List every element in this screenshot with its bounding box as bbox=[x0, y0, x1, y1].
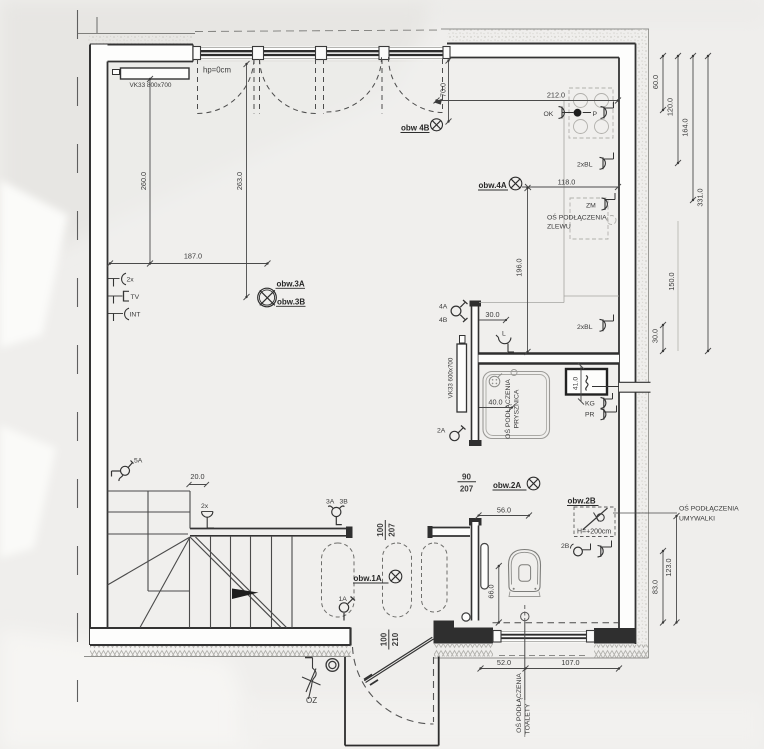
svg-text:obw.1A: obw.1A bbox=[354, 574, 382, 583]
svg-text:52.0: 52.0 bbox=[497, 658, 511, 667]
svg-text:83.0: 83.0 bbox=[651, 580, 660, 594]
svg-text:100: 100 bbox=[380, 632, 389, 646]
svg-text:263.0: 263.0 bbox=[235, 172, 244, 190]
svg-text:hp=0cm: hp=0cm bbox=[203, 66, 231, 75]
svg-text:207: 207 bbox=[388, 523, 397, 537]
svg-text:obw.2A: obw.2A bbox=[493, 481, 521, 490]
svg-text:P: P bbox=[593, 111, 598, 118]
svg-text:107.0: 107.0 bbox=[561, 658, 579, 667]
svg-text:obw 4B: obw 4B bbox=[401, 124, 430, 133]
svg-text:30.0: 30.0 bbox=[651, 329, 660, 343]
svg-text:OŚ PODŁĄCZENIA: OŚ PODŁĄCZENIA bbox=[679, 504, 739, 513]
svg-text:331.0: 331.0 bbox=[696, 188, 705, 206]
svg-text:INT: INT bbox=[130, 312, 141, 319]
svg-text:90: 90 bbox=[462, 473, 471, 482]
svg-text:150.0: 150.0 bbox=[667, 272, 676, 290]
svg-text:VK33 600x700: VK33 600x700 bbox=[448, 357, 455, 398]
svg-text:2B: 2B bbox=[561, 543, 570, 550]
svg-text:196.0: 196.0 bbox=[515, 258, 524, 276]
svg-text:OZ: OZ bbox=[306, 696, 317, 705]
svg-text:40.0: 40.0 bbox=[488, 398, 502, 407]
svg-text:120.0: 120.0 bbox=[666, 98, 675, 116]
svg-text:TV: TV bbox=[131, 294, 140, 301]
svg-text:PR: PR bbox=[585, 412, 595, 419]
svg-text:VK33 800x700: VK33 800x700 bbox=[130, 82, 172, 89]
svg-text:5A: 5A bbox=[134, 458, 143, 465]
svg-text:3B: 3B bbox=[340, 499, 349, 506]
svg-text:OK: OK bbox=[544, 111, 554, 118]
svg-text:PRYSZNICA: PRYSZNICA bbox=[514, 389, 521, 428]
svg-text:2xBL: 2xBL bbox=[577, 324, 593, 331]
svg-text:187.0: 187.0 bbox=[184, 252, 202, 261]
svg-text:164.0: 164.0 bbox=[681, 118, 690, 136]
svg-text:obw.3B: obw.3B bbox=[277, 298, 305, 307]
svg-text:207: 207 bbox=[460, 485, 474, 494]
svg-text:30.0: 30.0 bbox=[485, 310, 499, 319]
svg-text:66.0: 66.0 bbox=[487, 584, 496, 598]
svg-text:3A: 3A bbox=[326, 499, 335, 506]
svg-text:ZM: ZM bbox=[586, 203, 596, 210]
svg-text:L: L bbox=[502, 331, 506, 338]
svg-text:2A: 2A bbox=[437, 428, 446, 435]
svg-text:obw.2B: obw.2B bbox=[568, 497, 596, 506]
svg-text:H=+200cm: H=+200cm bbox=[577, 529, 611, 536]
svg-text:70.0: 70.0 bbox=[439, 83, 448, 97]
svg-text:210: 210 bbox=[391, 632, 400, 646]
svg-text:OŚ PODŁĄCZENIA: OŚ PODŁĄCZENIA bbox=[514, 673, 523, 733]
svg-text:OŚ PODŁĄCZENIA: OŚ PODŁĄCZENIA bbox=[547, 213, 607, 222]
svg-text:118.0: 118.0 bbox=[558, 178, 576, 187]
svg-text:1A: 1A bbox=[339, 596, 348, 603]
svg-text:TOALETY: TOALETY bbox=[525, 703, 532, 734]
svg-text:41.0: 41.0 bbox=[573, 377, 580, 390]
svg-text:56.0: 56.0 bbox=[497, 506, 511, 515]
svg-text:4B: 4B bbox=[439, 317, 448, 324]
svg-text:obw.4A: obw.4A bbox=[479, 181, 507, 190]
svg-text:2x: 2x bbox=[201, 503, 209, 510]
svg-text:4A: 4A bbox=[439, 304, 448, 311]
svg-text:ZLEWU: ZLEWU bbox=[547, 224, 571, 231]
svg-text:60.0: 60.0 bbox=[651, 75, 660, 89]
svg-text:20.0: 20.0 bbox=[190, 472, 204, 481]
svg-text:100: 100 bbox=[376, 523, 385, 537]
svg-text:KG: KG bbox=[585, 401, 595, 408]
svg-text:2xBL: 2xBL bbox=[577, 162, 593, 169]
svg-text:260.0: 260.0 bbox=[139, 172, 148, 190]
svg-text:123.0: 123.0 bbox=[664, 558, 673, 576]
svg-text:obw.3A: obw.3A bbox=[277, 280, 305, 289]
svg-text:UMYWALKI: UMYWALKI bbox=[679, 516, 715, 523]
svg-text:212.0: 212.0 bbox=[547, 91, 565, 100]
svg-text:2x: 2x bbox=[127, 277, 135, 284]
